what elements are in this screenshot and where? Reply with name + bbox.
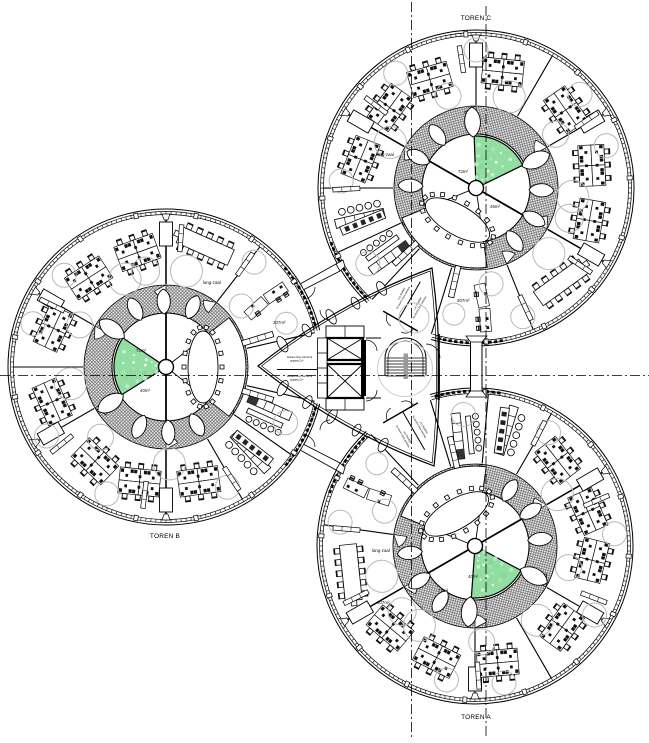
svg-text:40m²: 40m² (140, 388, 151, 393)
svg-text:TOREN B: TOREN B (150, 533, 180, 540)
svg-text:72m²: 72m² (438, 588, 449, 593)
svg-text:45m²: 45m² (490, 204, 501, 209)
svg-text:307m²: 307m² (273, 320, 286, 325)
svg-text:lang-zaal: lang-zaal (203, 280, 221, 285)
svg-text:TOREN A: TOREN A (461, 714, 491, 721)
svg-text:opgang Cs²: opgang Cs² (290, 359, 304, 363)
svg-text:TOREN C: TOREN C (461, 15, 492, 22)
svg-text:lang-zaal: lang-zaal (372, 548, 390, 553)
svg-text:72m²: 72m² (136, 348, 147, 353)
svg-text:opgang Cs²: opgang Cs² (290, 378, 304, 382)
svg-text:40m²: 40m² (468, 574, 479, 579)
svg-text:307m²: 307m² (377, 600, 390, 605)
svg-text:lesbare loze ruimte bij: lesbare loze ruimte bij (287, 355, 313, 359)
svg-text:72m²: 72m² (458, 169, 469, 174)
svg-text:lang-zaal: lang-zaal (376, 152, 394, 157)
svg-text:307m²: 307m² (457, 298, 470, 303)
svg-text:lesbare loze ruimte bij: lesbare loze ruimte bij (287, 374, 313, 378)
